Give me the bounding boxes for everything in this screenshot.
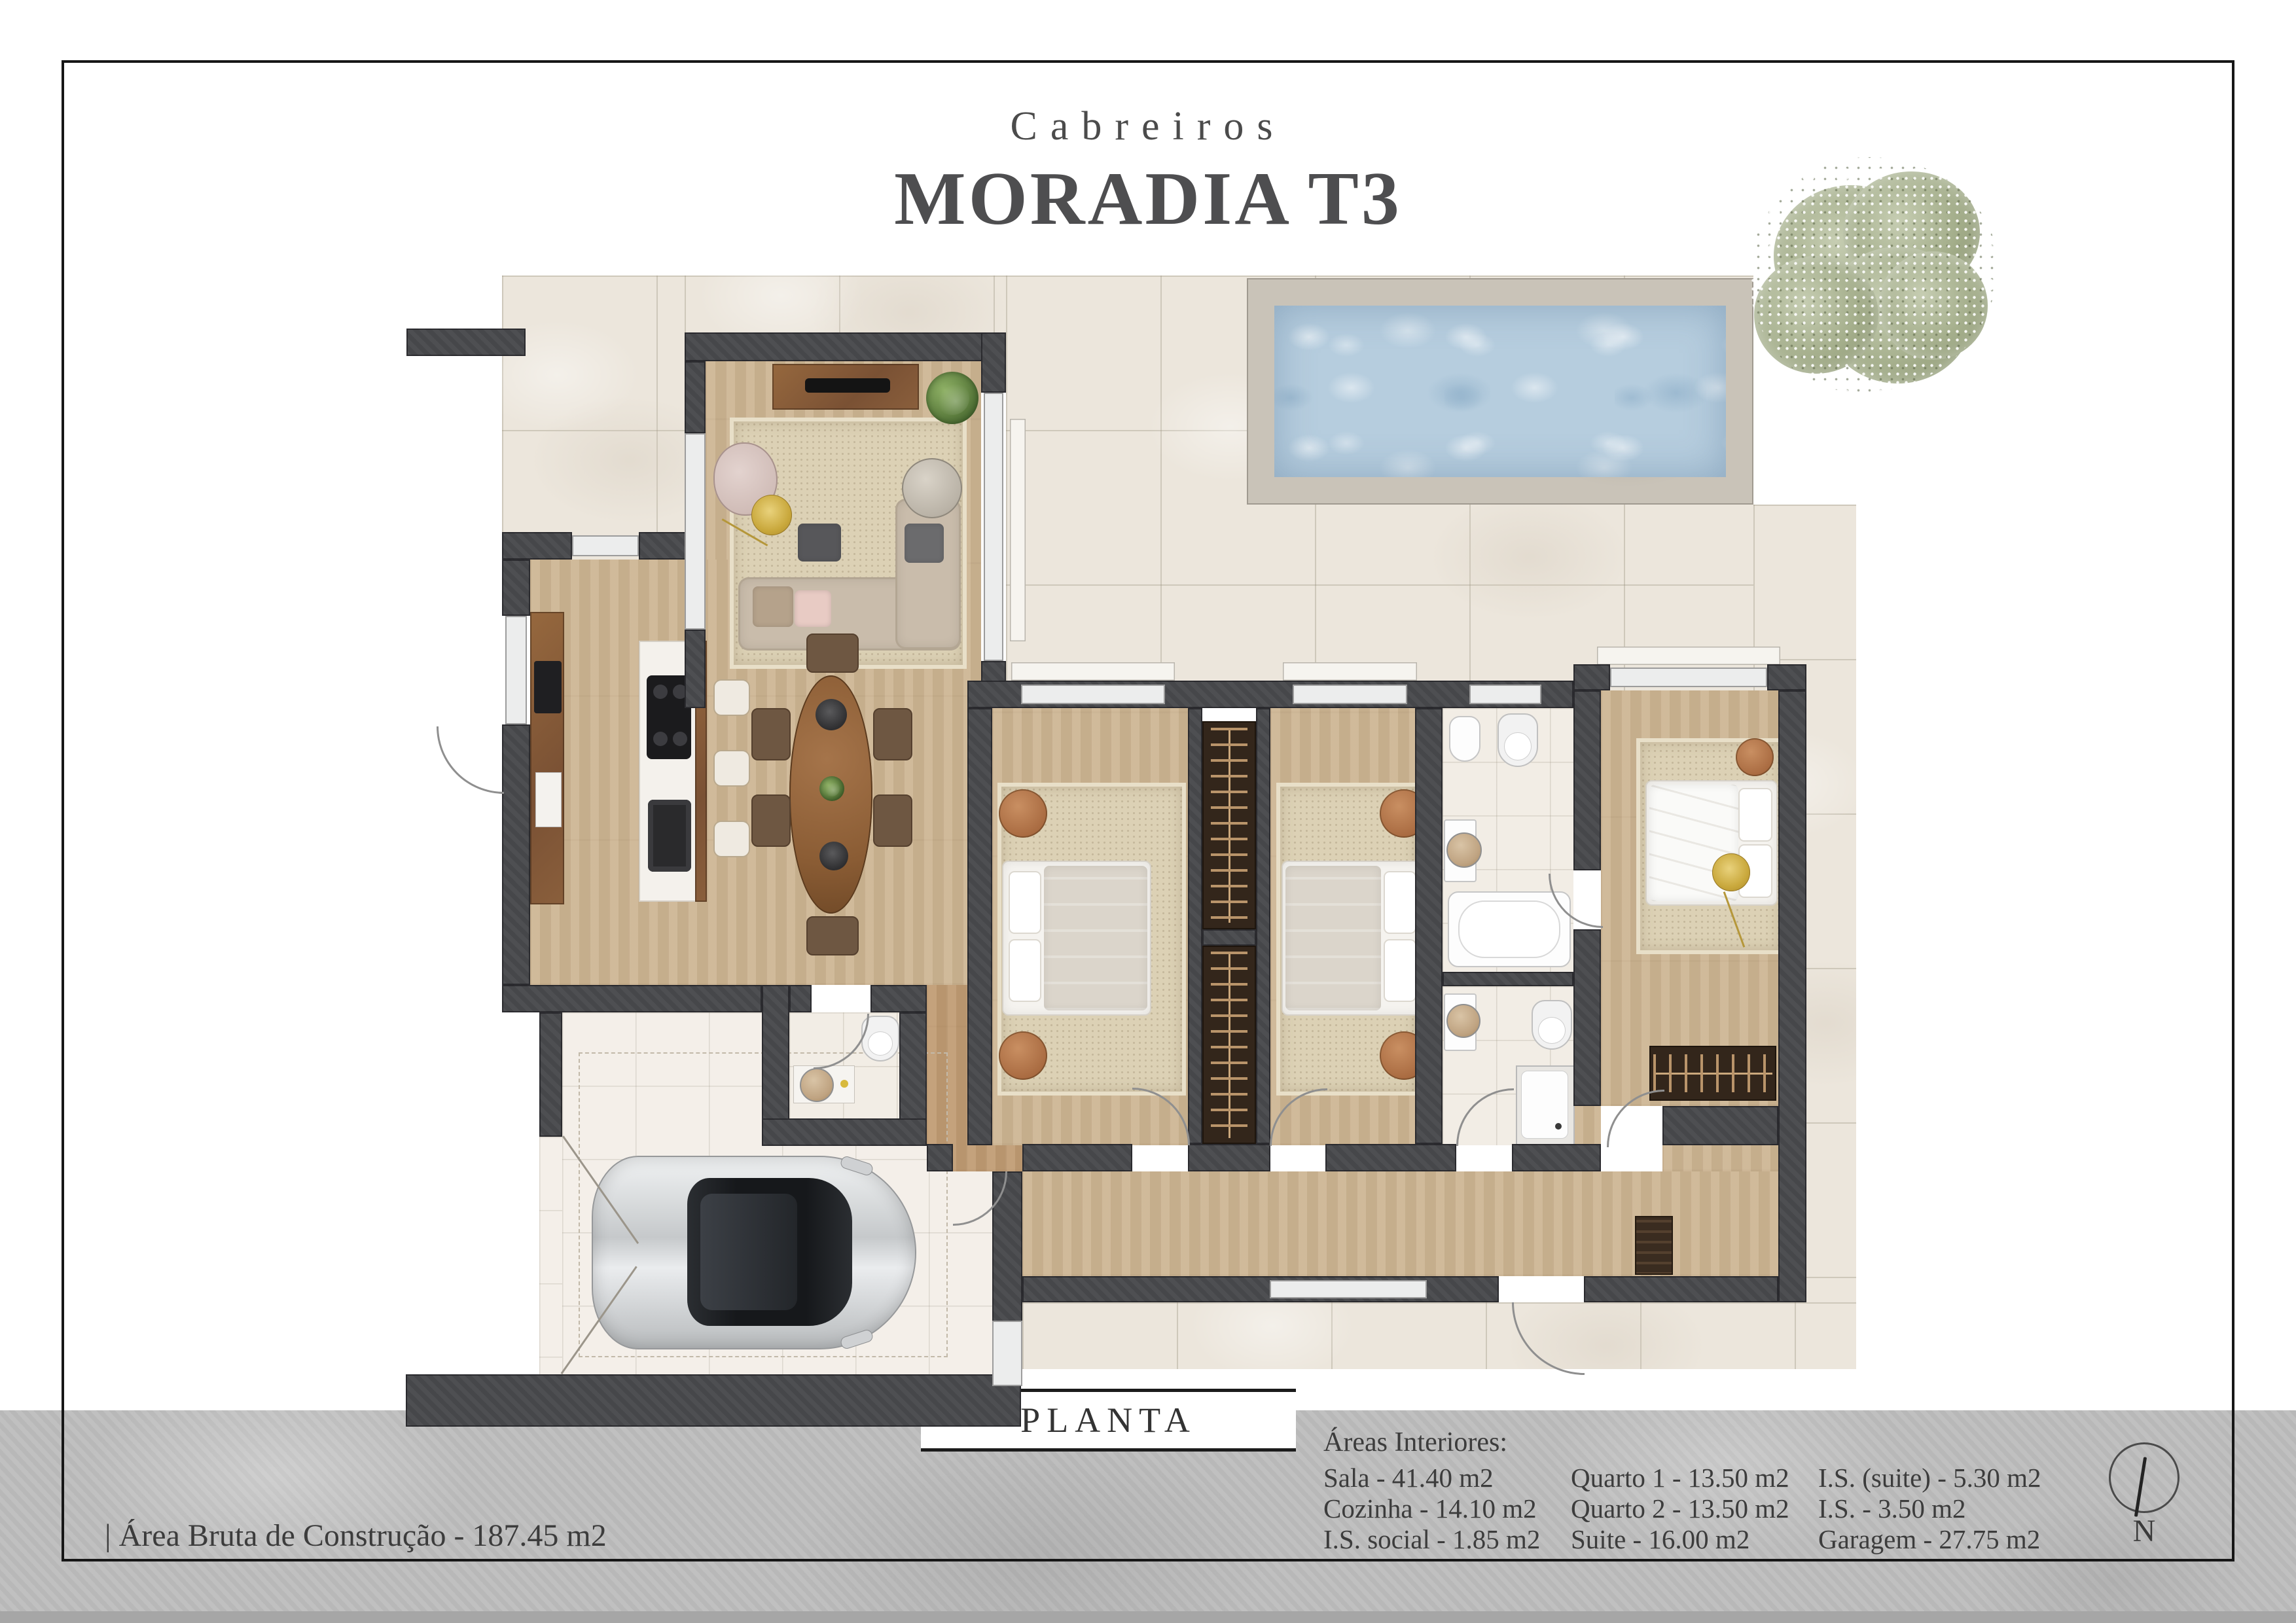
window-quarto2 xyxy=(1293,685,1407,704)
wall-wc xyxy=(870,985,927,1012)
wall xyxy=(502,560,530,616)
patio-south-walkway xyxy=(1022,1302,1856,1369)
dining-chair xyxy=(873,708,912,760)
counter-sink xyxy=(535,772,562,827)
bar-stool xyxy=(713,750,750,787)
bed-quarto1 xyxy=(1002,861,1151,1016)
window-cozinha-west xyxy=(505,616,527,724)
window-cozinha-north xyxy=(572,535,639,556)
plate xyxy=(819,842,848,870)
wall xyxy=(502,724,530,985)
wall-bath-divider xyxy=(1443,972,1573,986)
compass-north-label: N xyxy=(2111,1513,2177,1549)
shower-tray xyxy=(1521,1071,1568,1139)
shower-drain xyxy=(1555,1123,1562,1130)
wall xyxy=(1325,1144,1456,1171)
dining-chair xyxy=(751,708,791,760)
exterior-stats: | Área Bruta de Construção - 187.45 m2 |… xyxy=(105,1421,607,1623)
burner xyxy=(653,685,668,699)
wall xyxy=(406,329,526,356)
kitchen-counter xyxy=(530,612,564,904)
toilet xyxy=(1498,713,1538,767)
patio-northwest xyxy=(502,276,685,560)
sofa-chaise xyxy=(895,499,961,649)
sink-basin xyxy=(1446,1004,1480,1038)
wall xyxy=(981,332,1006,393)
interior-areas: Áreas Interiores: Sala - 41.40 m2 Quarto… xyxy=(1323,1427,2093,1554)
side-table xyxy=(999,789,1047,838)
window-sill xyxy=(1010,419,1026,641)
wall-bath-suite xyxy=(1573,929,1601,1106)
wall xyxy=(685,630,706,708)
window-sill xyxy=(1283,662,1417,681)
coffee-table-dark xyxy=(798,524,841,562)
wall-garage-north xyxy=(502,985,762,1012)
floor-corridor-east xyxy=(1662,1145,1778,1171)
plan-label: PLANTA xyxy=(1020,1400,1196,1440)
tap-gold xyxy=(840,1080,848,1088)
bed-quarto2 xyxy=(1282,861,1423,1016)
floor-lamp-gold xyxy=(751,495,792,535)
wall xyxy=(685,361,706,433)
wardrobe-quarto1 xyxy=(1202,721,1256,929)
dining-chair xyxy=(806,916,859,955)
wall-quarto2-bath xyxy=(1415,708,1443,1144)
wall-suite-north xyxy=(1573,664,1610,690)
area-item: Cozinha - 14.10 m2 xyxy=(1323,1493,1571,1524)
floor-lamp-gold xyxy=(1712,853,1750,891)
wall xyxy=(927,1144,953,1171)
wall-closet xyxy=(1256,708,1270,1144)
patio-north-strip xyxy=(685,276,1006,332)
hall-bench xyxy=(1635,1216,1673,1275)
plant-icon xyxy=(926,372,978,424)
wall-suite-east xyxy=(1778,690,1806,1302)
oven xyxy=(534,661,562,713)
island-sink xyxy=(648,800,691,872)
table-plant-icon xyxy=(819,776,844,801)
pool-water xyxy=(1274,306,1726,477)
wall xyxy=(685,332,1006,361)
window-bath xyxy=(1469,685,1541,704)
wall xyxy=(1512,1144,1601,1171)
bidet xyxy=(1449,716,1480,762)
window-sala-east xyxy=(984,393,1003,661)
wall-suite-south xyxy=(1662,1106,1778,1145)
stat-line: | Área Bruta de Construção - 187.45 m2 xyxy=(105,1513,607,1559)
garage-gate-threshold xyxy=(539,1137,562,1374)
toilet xyxy=(1532,1000,1572,1050)
window-sill xyxy=(1597,647,1780,665)
coffee-table-marble xyxy=(902,458,962,518)
dining-chair xyxy=(873,794,912,847)
bathtub-inner xyxy=(1458,901,1560,958)
wall-garage-south xyxy=(406,1374,1021,1427)
compass-icon xyxy=(2109,1442,2179,1513)
tree-icon xyxy=(1749,157,1998,393)
side-table xyxy=(999,1031,1047,1080)
cushion xyxy=(795,590,831,627)
window-suite-slider xyxy=(1610,668,1767,687)
bar-stool xyxy=(713,679,750,716)
wall-wc xyxy=(789,985,812,1012)
wall-suite-north xyxy=(1767,664,1806,690)
wall xyxy=(1022,1144,1132,1171)
wall xyxy=(1188,1144,1270,1171)
wall xyxy=(502,532,572,560)
wall-closet xyxy=(1202,929,1256,946)
area-item: Suite - 16.00 m2 xyxy=(1571,1524,1818,1554)
wardrobe-suite xyxy=(1649,1046,1776,1101)
interior-areas-heading: Áreas Interiores: xyxy=(1323,1427,2093,1458)
cushion xyxy=(905,524,944,563)
area-item: I.S. - 3.50 m2 xyxy=(1818,1493,2093,1524)
cushion xyxy=(753,586,793,627)
plate xyxy=(816,699,847,730)
wardrobe-quarto2 xyxy=(1202,946,1256,1144)
window-quarto1 xyxy=(1021,685,1165,704)
brand-title: Cabreiros xyxy=(0,103,2296,150)
door-garage-side xyxy=(992,1321,1022,1386)
floor-plan-page: Cabreiros MORADIA T3 xyxy=(0,0,2296,1623)
wall-bath-suite xyxy=(1573,690,1601,870)
bed-suite xyxy=(1645,780,1778,906)
sink-basin xyxy=(800,1068,834,1102)
dining-chair xyxy=(806,633,859,673)
wall-wc xyxy=(762,1118,927,1146)
dining-chair xyxy=(751,794,791,847)
area-item: Quarto 2 - 13.50 m2 xyxy=(1571,1493,1818,1524)
burner xyxy=(673,732,687,746)
wall-garage-west xyxy=(539,1012,562,1137)
window-south xyxy=(1270,1280,1427,1298)
wall-south xyxy=(1022,1276,1499,1302)
window-sala-west xyxy=(685,433,706,630)
door-arc-kitchen-ext xyxy=(437,726,504,794)
wall-closet xyxy=(1188,708,1202,1144)
car xyxy=(590,1150,918,1355)
burner xyxy=(653,732,668,746)
side-table xyxy=(1736,738,1774,776)
area-item: Garagem - 27.75 m2 xyxy=(1818,1524,2093,1554)
sink-basin xyxy=(1446,832,1482,868)
window-sill xyxy=(1011,662,1175,681)
wall-quarto1-west xyxy=(967,708,992,1145)
area-item: Sala - 41.40 m2 xyxy=(1323,1462,1571,1493)
wall-south xyxy=(1584,1276,1778,1302)
area-item: I.S. social - 1.85 m2 xyxy=(1323,1524,1571,1554)
bar-stool xyxy=(713,821,750,857)
area-item: Quarto 1 - 13.50 m2 xyxy=(1571,1462,1818,1493)
area-item: I.S. (suite) - 5.30 m2 xyxy=(1818,1462,2093,1493)
tv xyxy=(805,378,890,393)
